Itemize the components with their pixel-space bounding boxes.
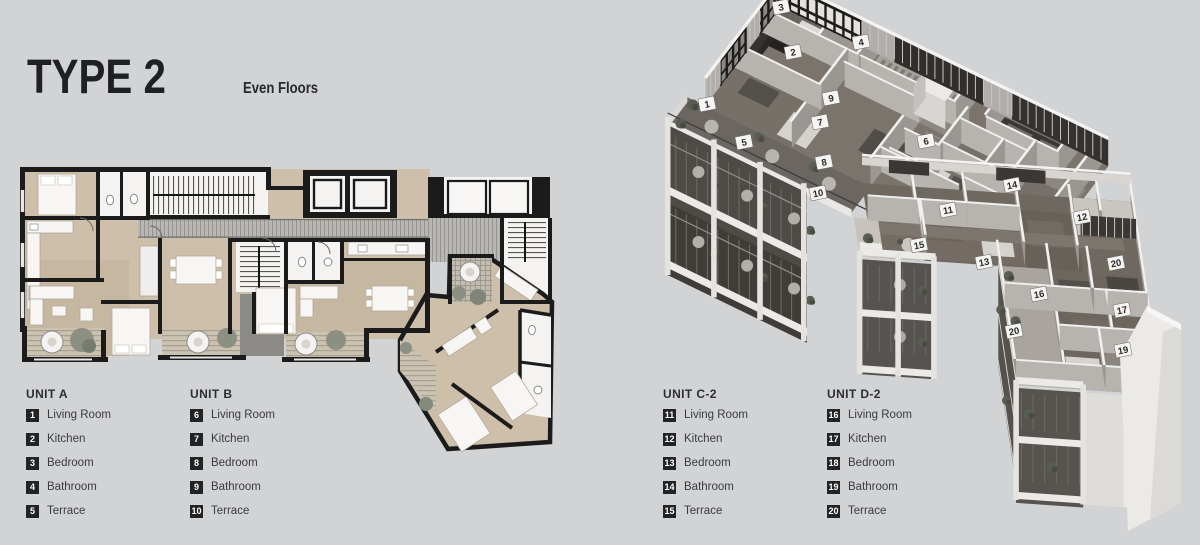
svg-text:20: 20: [1008, 326, 1020, 339]
svg-text:17: 17: [1116, 305, 1128, 318]
svg-text:20: 20: [1110, 258, 1122, 271]
svg-text:16: 16: [1033, 289, 1045, 302]
svg-text:12: 12: [1076, 212, 1088, 225]
svg-text:10: 10: [812, 188, 824, 201]
svg-text:13: 13: [978, 257, 990, 270]
svg-text:19: 19: [1117, 345, 1129, 358]
